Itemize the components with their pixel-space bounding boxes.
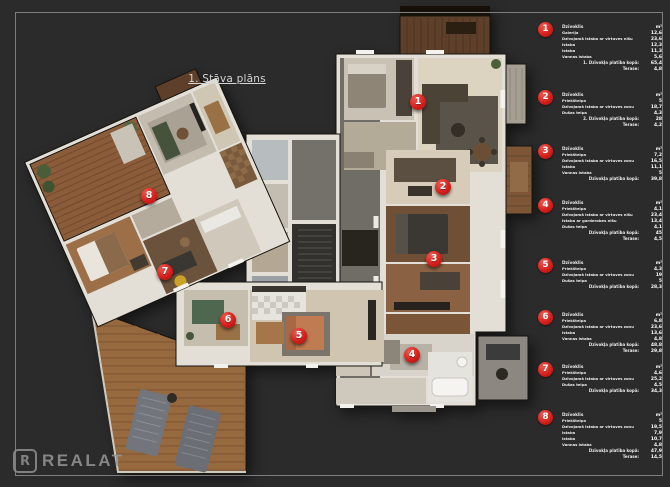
plan-marker-6: 6 — [220, 312, 236, 328]
legend-number-badge: 6 — [538, 310, 553, 325]
terrace-area: 29,8 — [642, 348, 662, 354]
legend-rows: Dzīvoklism²Priekštelpa4,1Dzīvojamā istab… — [562, 200, 662, 242]
room-label: Vannas istaba — [562, 442, 592, 448]
legend-row: Terase:4,8 — [562, 66, 662, 72]
terrace-area: 14,5 — [642, 454, 662, 460]
terrace-label: Terase: — [623, 236, 639, 242]
legend-row: Terase:14,5 — [562, 454, 662, 460]
south-wing — [176, 282, 384, 366]
total-area: 34,3 — [642, 388, 662, 394]
total-area: 28,3 — [642, 284, 662, 290]
floor-plan-page: 1. Stāva plāns 12345678 1Dzīvoklism²Gale… — [0, 0, 670, 487]
apartment4-room — [336, 378, 426, 404]
plan-marker-7: 7 — [157, 264, 173, 280]
legend-row: Terase:4,2 — [562, 122, 662, 128]
room-label: Dušas telpa — [562, 382, 587, 388]
plan-marker-5: 5 — [291, 328, 307, 344]
legend-row: Dzīvokļa platība kopā:28,3 — [562, 284, 662, 290]
legend-row: Dzīvokļa platība kopā:39,8 — [562, 176, 662, 182]
terrace-area: 4,8 — [642, 66, 662, 72]
total-label: Dzīvokļa platība kopā: — [589, 388, 639, 394]
legend-rows: Dzīvoklism²Priekštelpa6,8Dzīvojamā istab… — [562, 312, 662, 354]
legend-number-badge: 8 — [538, 410, 553, 425]
legend-rows: Dzīvoklism²Priekštelpa7,2Dzīvojamā istab… — [562, 146, 662, 182]
realat-logo: R REALAT — [13, 449, 125, 473]
terrace-area: 4,2 — [642, 122, 662, 128]
realat-logo-icon: R — [13, 449, 37, 473]
legend-number-badge: 2 — [538, 90, 553, 105]
page-title: 1. Stāva plāns — [181, 73, 273, 85]
realat-logo-text: REALAT — [42, 451, 125, 471]
legend-rows: Dzīvoklism²Galerija12,6Dzīvojamā istaba … — [562, 24, 662, 72]
legend-number-badge: 1 — [538, 22, 553, 37]
plan-marker-8: 8 — [141, 188, 157, 204]
total-area: 39,8 — [642, 176, 662, 182]
legend-row: Terase:4,5 — [562, 236, 662, 242]
room-label: Dušas telpa — [562, 224, 587, 230]
terrace-label: Terase: — [623, 66, 639, 72]
legend-rows: Dzīvoklism²Priekštelpa4,6Dzīvojamā istab… — [562, 364, 662, 394]
room-label: Vannas istaba — [562, 170, 592, 176]
balcony-east-apartment2 — [506, 146, 532, 214]
terrace-label: Terase: — [623, 454, 639, 460]
patio-table — [167, 393, 177, 403]
legend-item-5: 5Dzīvoklism²Priekštelpa4,3Dzīvojamā ista… — [538, 260, 662, 320]
terrace-east-apartment4 — [478, 336, 528, 400]
room-label: Dušas telpa — [562, 278, 587, 284]
legend-row: Terase:29,8 — [562, 348, 662, 354]
legend-number-badge: 5 — [538, 258, 553, 273]
plan-marker-4: 4 — [404, 347, 420, 363]
plan-marker-3: 3 — [426, 251, 442, 267]
legend-number-badge: 7 — [538, 362, 553, 377]
legend-number-badge: 3 — [538, 144, 553, 159]
room-label: Vannas istaba — [562, 336, 592, 342]
legend-item-8: 8Dzīvoklism²Priekštelpa5Dzīvojamā istaba… — [538, 412, 662, 487]
plan-marker-1: 1 — [410, 94, 426, 110]
total-label: Dzīvokļa platība kopā: — [589, 176, 639, 182]
total-label: Dzīvokļa platība kopā: — [589, 284, 639, 290]
terrace-label: Terase: — [623, 122, 639, 128]
legend-number-badge: 4 — [538, 198, 553, 213]
balcony-east-apartment1 — [506, 64, 526, 124]
legend-row: Dzīvokļa platība kopā:34,3 — [562, 388, 662, 394]
elevator — [342, 230, 378, 266]
roof-deck-north — [400, 6, 490, 56]
terrace-label: Terase: — [623, 348, 639, 354]
legend-rows: Dzīvoklism²Priekštelpa5Dzīvojamā istaba … — [562, 412, 662, 460]
legend-rows: Dzīvoklism²Priekštelpa5Dzīvojamā istaba … — [562, 92, 662, 128]
plan-marker-2: 2 — [435, 179, 451, 195]
terrace-area: 4,5 — [642, 236, 662, 242]
legend-rows: Dzīvoklism²Priekštelpa4,3Dzīvojamā istab… — [562, 260, 662, 290]
